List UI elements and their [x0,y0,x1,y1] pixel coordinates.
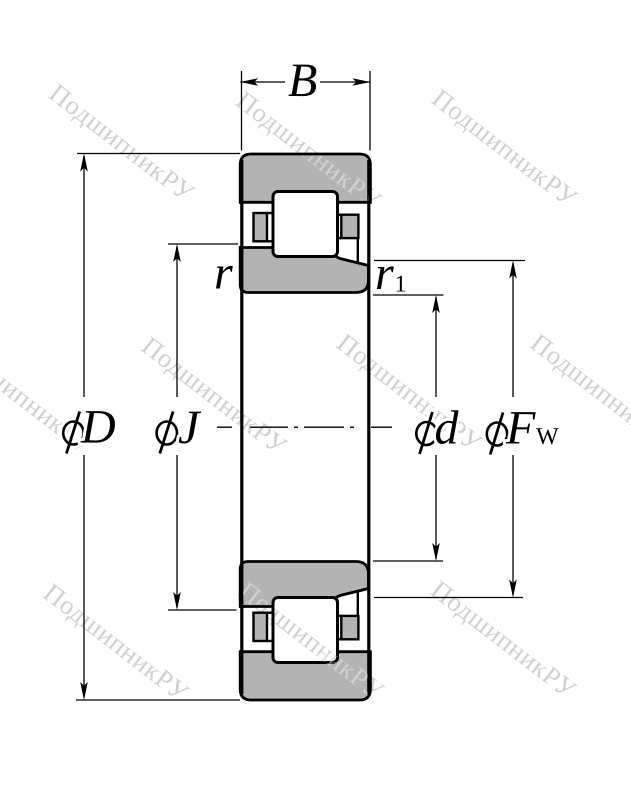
svg-text:F: F [505,402,536,455]
svg-text:B: B [288,54,317,107]
svg-text:D: D [80,401,116,454]
svg-text:r: r [375,247,394,300]
svg-text:d: d [435,402,460,455]
svg-text:J: J [178,401,202,454]
svg-text:W: W [536,424,559,450]
svg-text:1: 1 [395,272,407,298]
svg-text:r: r [214,247,233,300]
